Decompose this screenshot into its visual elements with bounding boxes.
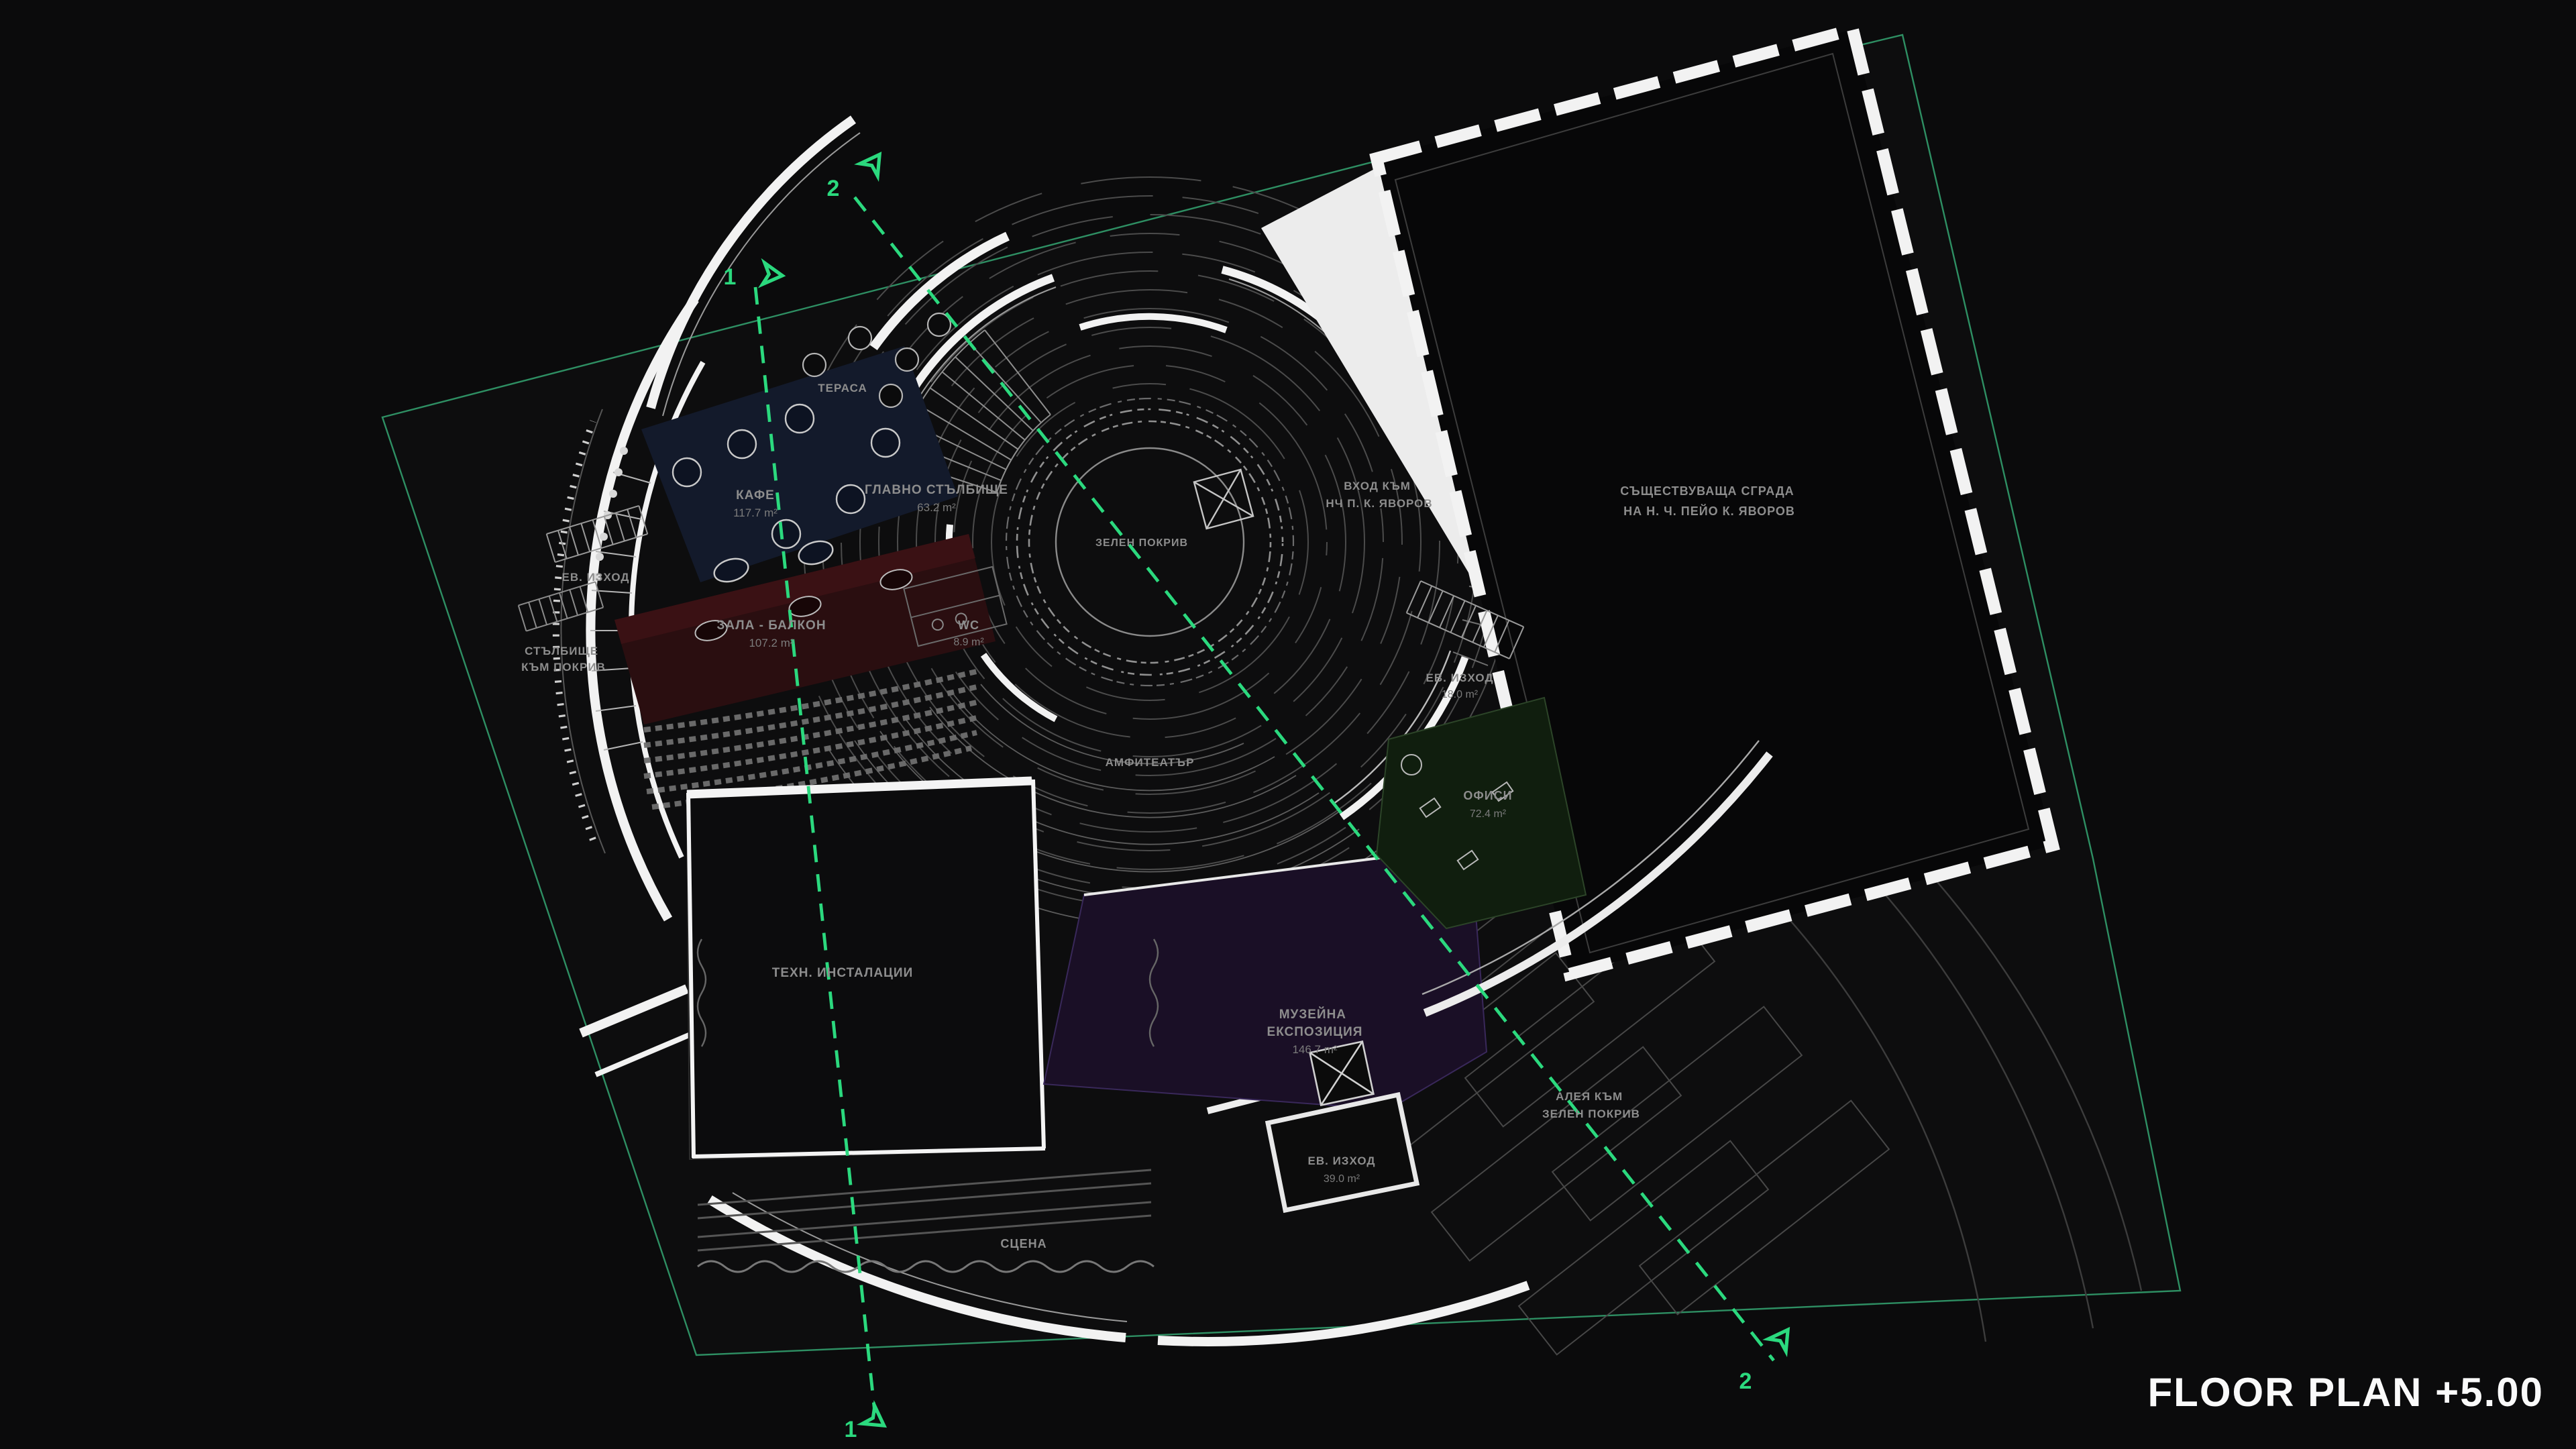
label-hall-balcony-area: 107.2 m²	[749, 637, 794, 649]
label-cafe-area: 117.7 m²	[733, 506, 777, 519]
label-stage: СЦЕНА	[1000, 1237, 1046, 1250]
label-exit-west: ЕВ. ИЗХОД	[562, 571, 630, 584]
svg-text:2: 2	[827, 176, 840, 201]
label-exit-ne: ЕВ. ИЗХОД	[1426, 672, 1494, 684]
label-museum-area: 146.7 m²	[1292, 1043, 1337, 1056]
label-tech: ТЕХН. ИНСТАЛАЦИИ	[772, 966, 913, 980]
label-exit-south: ЕВ. ИЗХОД	[1308, 1155, 1376, 1167]
label-exit-ne-area: 18.0 m²	[1442, 689, 1479, 700]
label-exit-south-area: 39.0 m²	[1324, 1173, 1360, 1185]
label-offices: ОФИСИ	[1463, 789, 1512, 802]
label-main-stair: ГЛАВНО СТЪЛБИЩЕ	[865, 483, 1008, 497]
svg-text:2: 2	[1739, 1368, 1752, 1394]
label-amphitheater: АМФИТЕАТЪР	[1106, 756, 1195, 769]
label-wc-area: 8.9 m²	[953, 637, 984, 648]
svg-text:1: 1	[724, 264, 737, 290]
label-terrace: ТЕРАСА	[818, 382, 867, 394]
label-green-roof: ЗЕЛЕН ПОКРИВ	[1095, 537, 1188, 549]
label-hall-balcony: ЗАЛА - БАЛКОН	[716, 619, 826, 633]
floor-plan-canvas: 1 1 2 2 ТЕРАСА КАФЕ 117.7 m² ГЛАВНО СТЪЛ…	[0, 0, 2576, 1449]
label-cafe: КАФЕ	[736, 488, 775, 502]
label-wc: WC	[958, 619, 979, 632]
page-title: FLOOR PLAN +5.00	[2148, 1370, 2544, 1415]
svg-text:1: 1	[845, 1417, 857, 1442]
label-main-stair-area: 63.2 m²	[917, 501, 956, 514]
label-offices-area: 72.4 m²	[1470, 808, 1507, 820]
